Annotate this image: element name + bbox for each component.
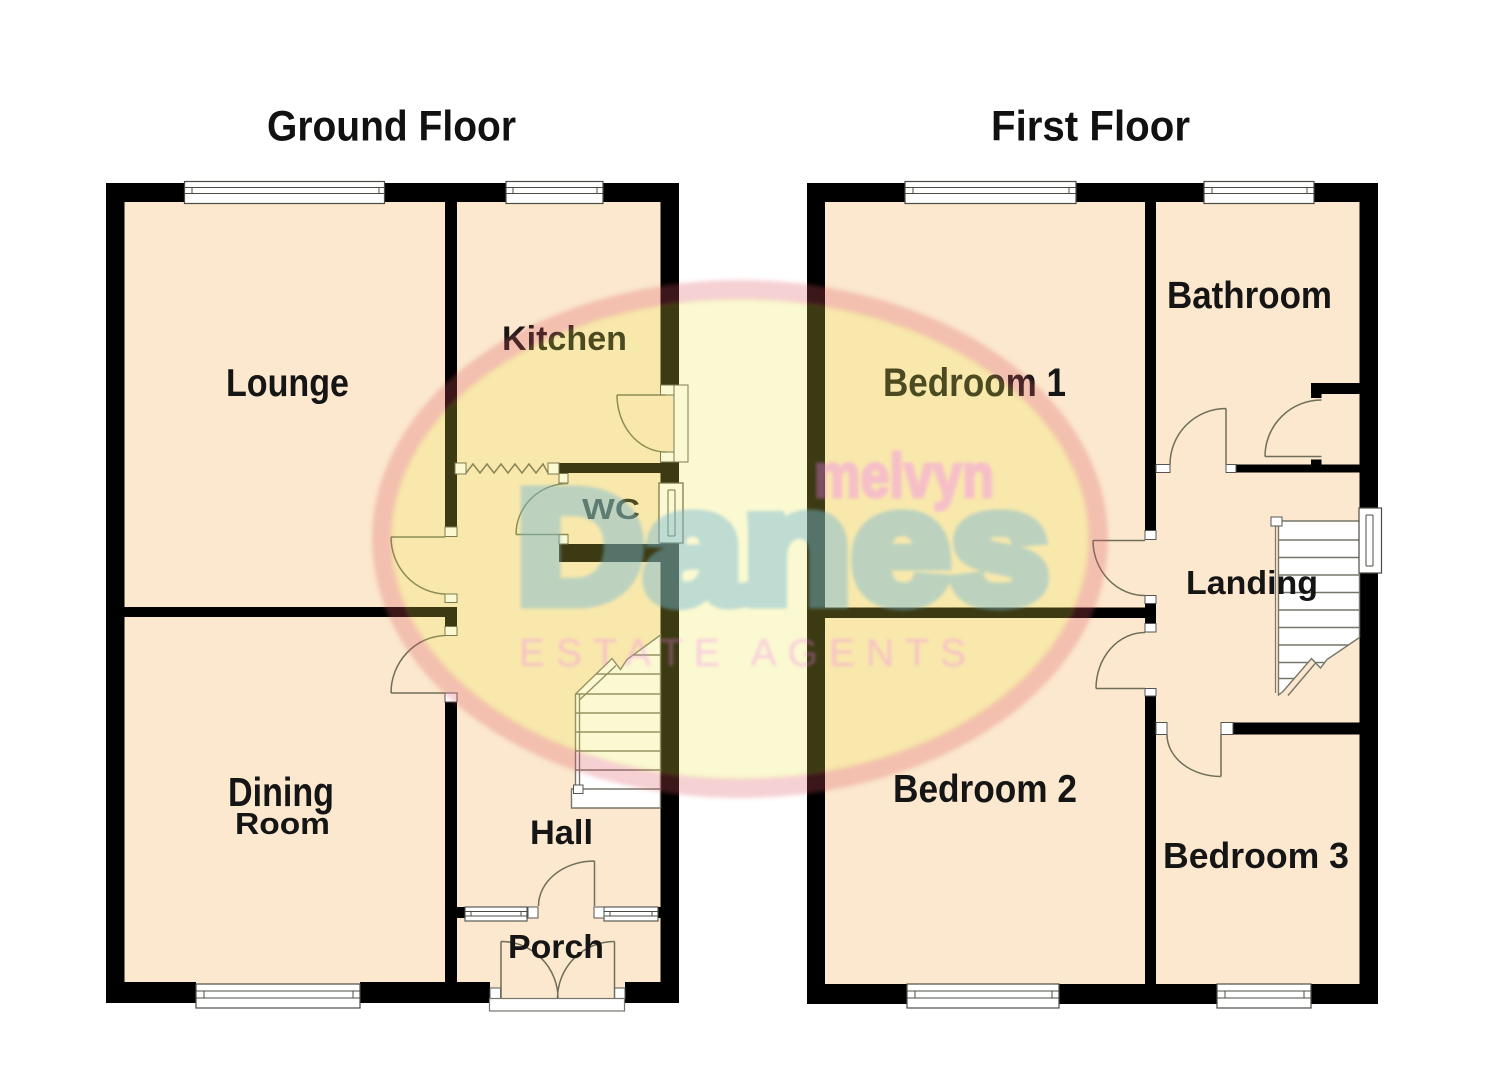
svg-text:Ground Floor: Ground Floor bbox=[267, 104, 516, 151]
svg-text:Room: Room bbox=[235, 806, 330, 841]
svg-text:Lounge: Lounge bbox=[226, 362, 349, 405]
svg-text:Bedroom 2: Bedroom 2 bbox=[893, 768, 1077, 811]
svg-text:Danes: Danes bbox=[516, 457, 1049, 636]
svg-text:Porch: Porch bbox=[508, 928, 604, 965]
svg-text:Landing: Landing bbox=[1186, 564, 1318, 601]
svg-text:Hall: Hall bbox=[530, 814, 593, 852]
svg-text:First Floor: First Floor bbox=[991, 104, 1190, 151]
svg-text:Bathroom: Bathroom bbox=[1167, 275, 1332, 317]
svg-text:Bedroom 3: Bedroom 3 bbox=[1163, 835, 1349, 876]
